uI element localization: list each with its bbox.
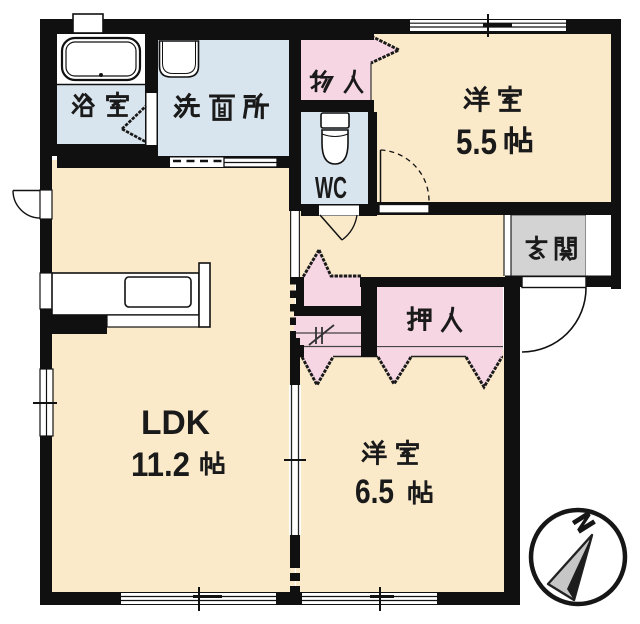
svg-text:6.5: 6.5	[355, 473, 394, 511]
svg-text:5.5: 5.5	[456, 123, 497, 162]
svg-text:11.2: 11.2	[131, 446, 190, 484]
svg-text:WC: WC	[315, 170, 347, 205]
svg-text:LDK: LDK	[141, 404, 210, 442]
